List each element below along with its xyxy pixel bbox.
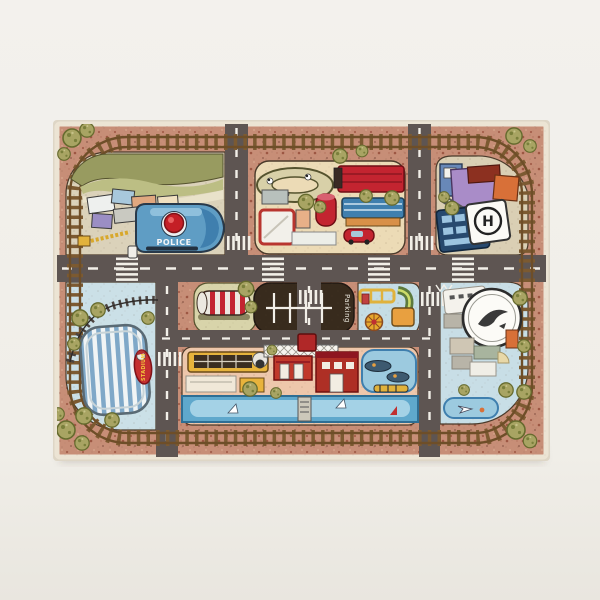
marina-pool — [362, 350, 416, 392]
airport-pond — [444, 398, 498, 418]
ball — [366, 314, 383, 331]
district-heliport: H — [436, 164, 519, 252]
canal — [182, 396, 418, 422]
police-label: POLICE — [156, 238, 191, 247]
parking-label: Parking — [343, 294, 351, 323]
police-car — [128, 246, 137, 258]
police-station: POLICE — [128, 204, 224, 258]
police-dome-light — [165, 214, 184, 233]
canal-bridge — [298, 397, 311, 421]
stadium-label: STADIUM — [141, 353, 147, 381]
bus-station — [188, 352, 268, 372]
fire-truck — [298, 334, 316, 351]
red-car — [344, 229, 374, 245]
helipad: H — [465, 199, 510, 244]
play-rug-image: POLICE — [0, 0, 600, 600]
helipad-letter: H — [482, 214, 494, 230]
red-barn — [334, 166, 404, 192]
product-photo: POLICE — [0, 0, 600, 600]
